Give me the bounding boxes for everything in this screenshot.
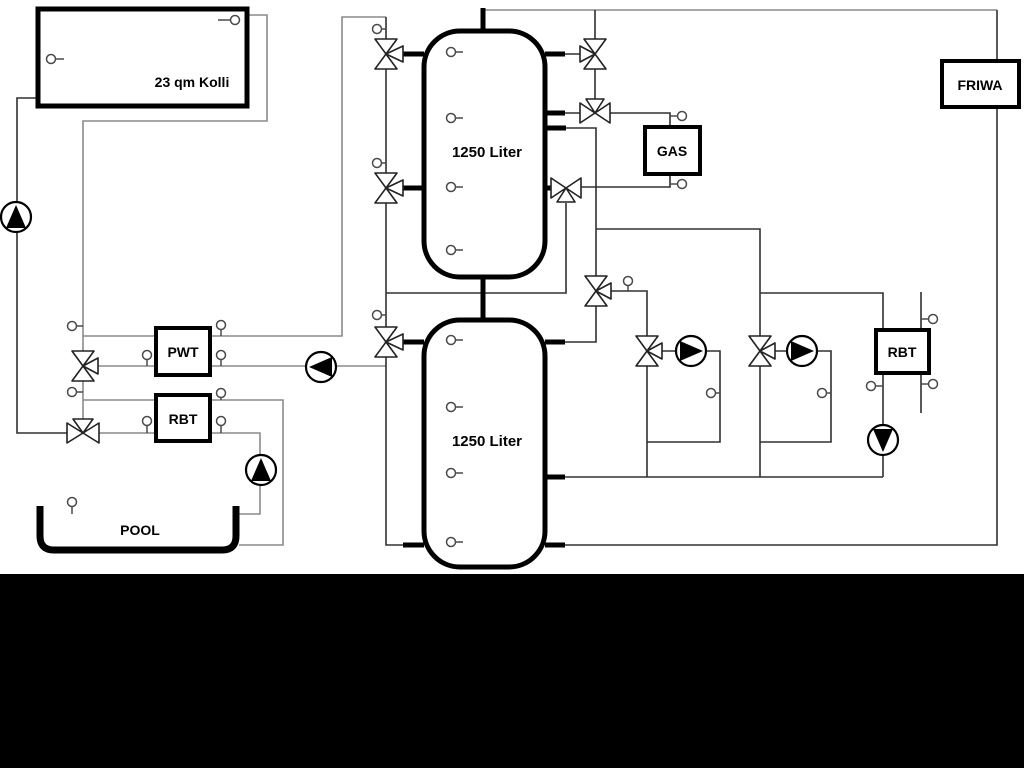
pool-label: POOL — [120, 522, 160, 538]
fresh-water-station: FRIWA — [942, 61, 1019, 107]
temp-sensor-icon — [818, 389, 827, 398]
temp-sensor-icon — [678, 180, 687, 189]
pump-icon-heating2 — [787, 336, 817, 366]
temp-sensor-icon — [373, 311, 382, 320]
temp-sensor-icon — [707, 389, 716, 398]
solar-collector-box — [38, 9, 247, 106]
temp-sensor-icon — [447, 538, 456, 547]
temp-sensor-icon — [678, 112, 687, 121]
pump-icon-solar — [1, 202, 31, 232]
temp-sensor-icon — [68, 388, 77, 397]
temp-sensor-icon — [447, 469, 456, 478]
temp-sensor-icon — [231, 16, 240, 25]
temp-sensor-icon — [624, 277, 633, 286]
rbt-left: RBT — [156, 395, 210, 441]
pump-icon-pool — [246, 455, 276, 485]
temp-sensor-icon — [217, 321, 226, 330]
temp-sensor-icon — [47, 55, 56, 64]
gas-label: GAS — [657, 143, 687, 159]
solar-collector: 23 qm Kolli — [38, 9, 247, 106]
temp-sensor-icon — [447, 48, 456, 57]
temp-sensor-icon — [447, 246, 456, 255]
pump-icon-pwt — [306, 352, 336, 382]
buffer-tank-bottom-label: 1250 Liter — [452, 433, 522, 450]
temp-sensor-icon — [867, 382, 876, 391]
friwa-label: FRIWA — [957, 77, 1002, 93]
gas-boiler: GAS — [645, 127, 700, 174]
temp-sensor-icon — [217, 389, 226, 398]
pwt-label: PWT — [167, 344, 199, 360]
temp-sensor-icon — [143, 417, 152, 426]
temp-sensor-icon — [373, 25, 382, 34]
temp-sensor-icon — [217, 417, 226, 426]
footer-black-bar — [0, 574, 1024, 768]
temp-sensor-icon — [447, 183, 456, 192]
temp-sensor-icon — [447, 114, 456, 123]
rbt-right: RBT — [876, 330, 929, 373]
buffer-tank-top: 1250 Liter — [424, 31, 545, 277]
temp-sensor-icon — [68, 498, 77, 507]
rbt-left-label: RBT — [169, 411, 198, 427]
temp-sensor-icon — [929, 380, 938, 389]
buffer-tank-bottom: 1250 Liter — [424, 320, 545, 567]
rbt-right-label: RBT — [888, 344, 917, 360]
temp-sensor-icon — [447, 403, 456, 412]
hydraulic-schematic: 23 qm Kolli 1250 Liter 1250 Liter PWT RB… — [0, 0, 1024, 768]
pump-icon-rbt-right — [868, 425, 898, 455]
temp-sensor-icon — [447, 336, 456, 345]
temp-sensor-icon — [373, 159, 382, 168]
temp-sensor-icon — [143, 351, 152, 360]
temp-sensor-icon — [68, 322, 77, 331]
temp-sensor-icon — [929, 315, 938, 324]
heat-exchanger-pwt: PWT — [156, 328, 210, 375]
pump-icon-heating1 — [676, 336, 706, 366]
buffer-tank-top-label: 1250 Liter — [452, 144, 522, 161]
temp-sensor-icon — [217, 351, 226, 360]
solar-collector-label: 23 qm Kolli — [155, 74, 230, 90]
